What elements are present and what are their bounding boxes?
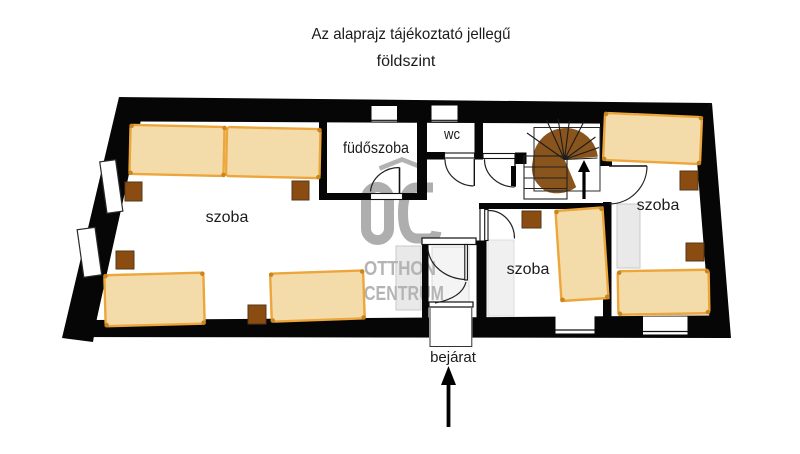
svg-text:szoba: szoba (507, 261, 550, 278)
svg-text:wc: wc (443, 126, 460, 143)
svg-text:szoba: szoba (206, 209, 249, 226)
svg-text:földszint: földszint (377, 53, 436, 70)
svg-text:Az alaprajz tájékoztató jelleg: Az alaprajz tájékoztató jellegű (312, 26, 511, 43)
svg-text:füdőszoba: füdőszoba (343, 140, 409, 157)
svg-text:bejárat: bejárat (430, 349, 477, 366)
svg-text:szoba: szoba (637, 197, 680, 214)
